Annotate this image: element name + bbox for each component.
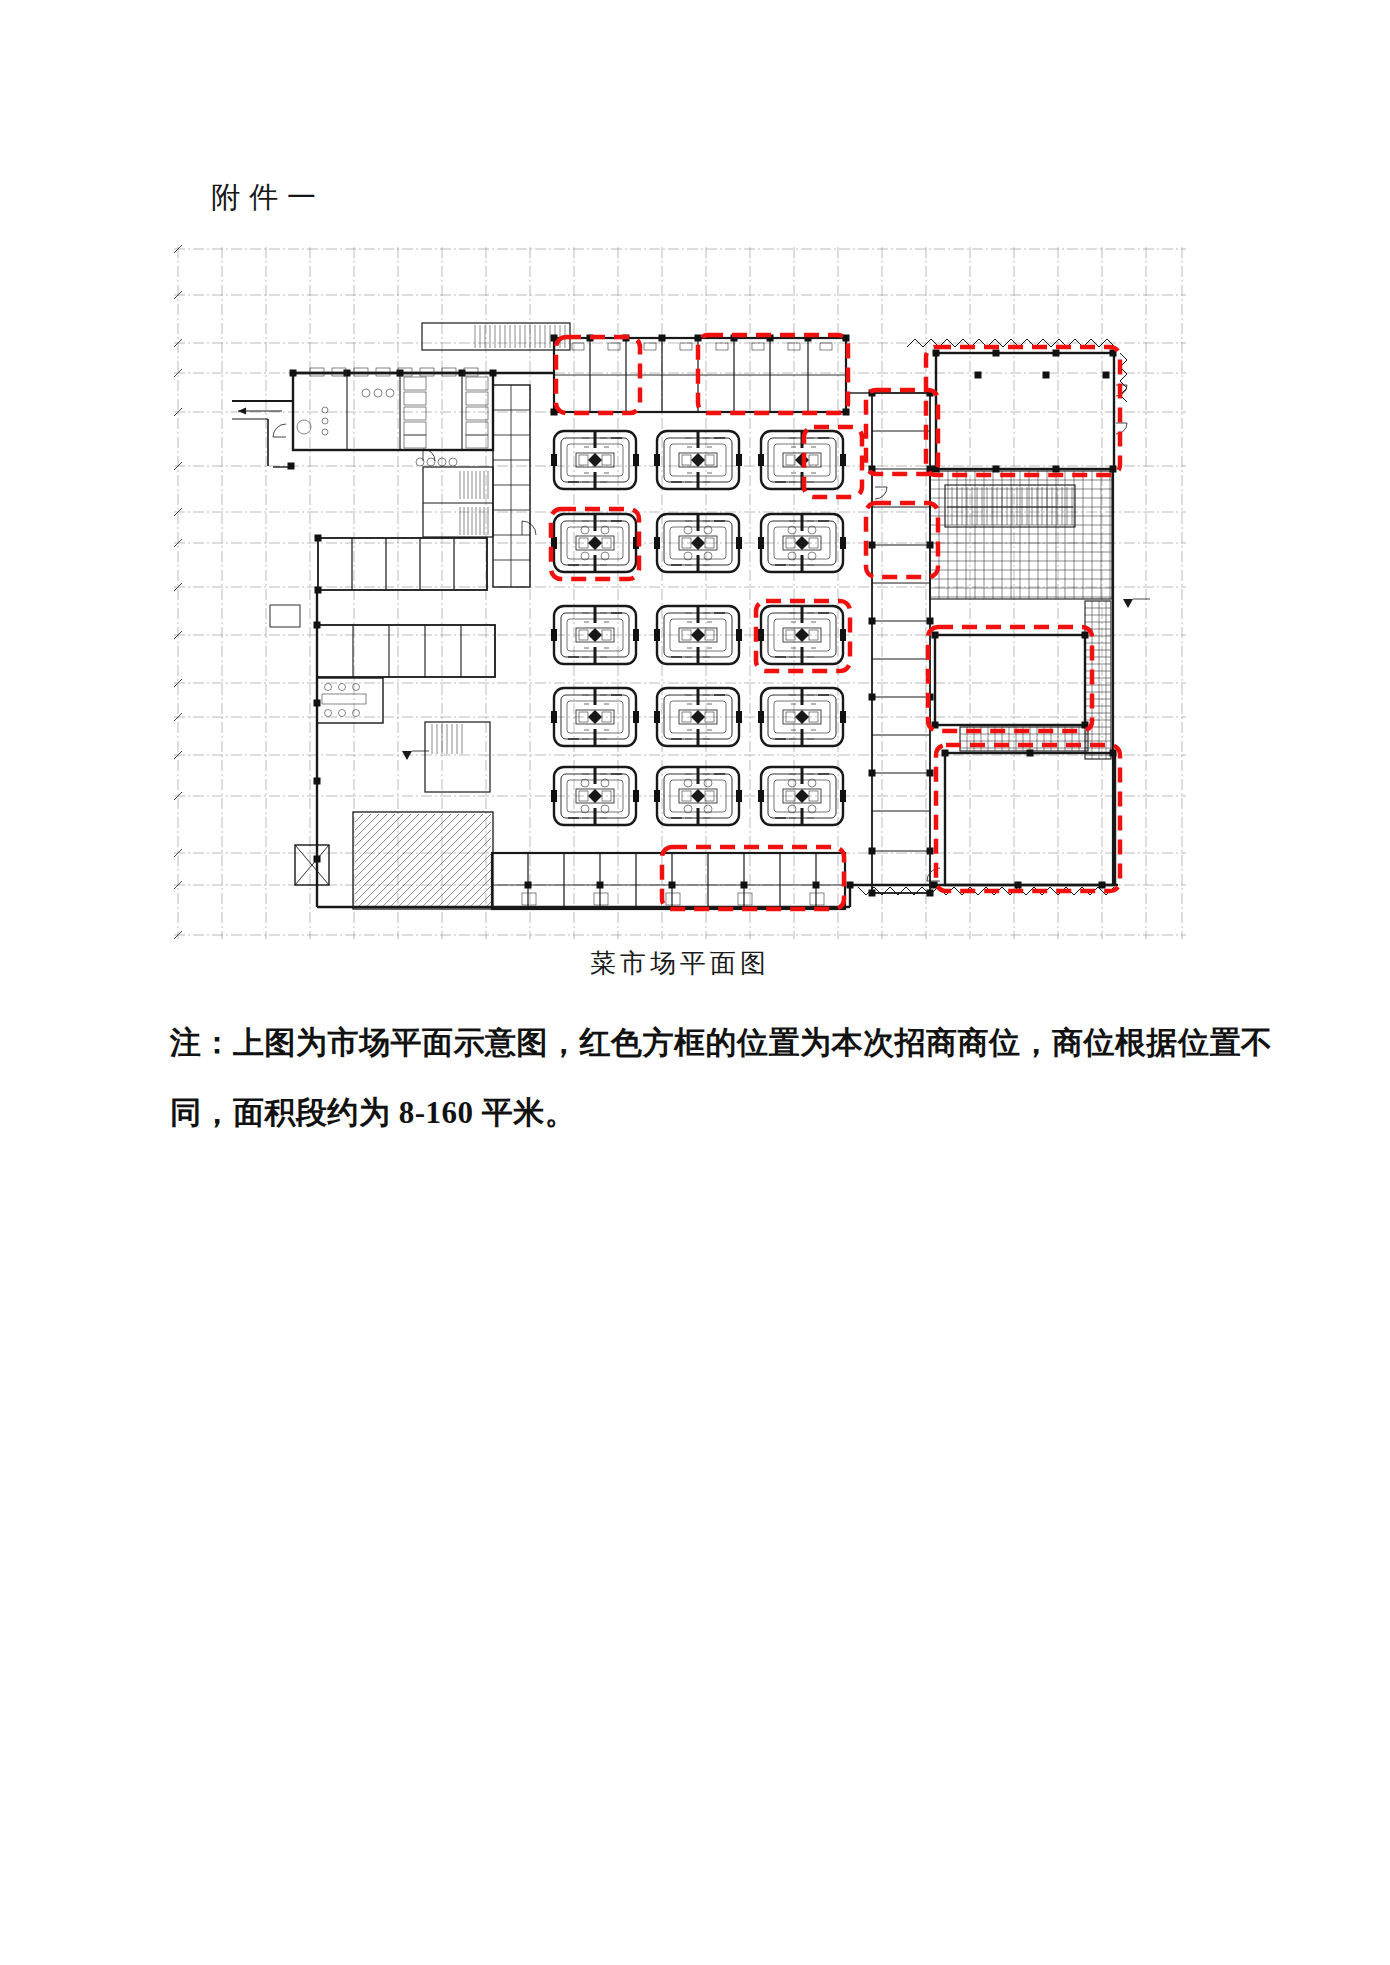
leasing-highlight-box bbox=[866, 503, 938, 577]
figure-caption: 菜市场平面图 bbox=[170, 946, 1190, 981]
document-page: 附件一 菜市场平面图 注：上图为市场平面示意图，红色方框的位置为本次招商商位，商… bbox=[0, 0, 1390, 1965]
leasing-highlight-box bbox=[926, 347, 1120, 475]
attachment-title: 附件一 bbox=[211, 178, 325, 218]
leasing-highlight-box bbox=[928, 627, 1092, 731]
leasing-highlight-box bbox=[662, 847, 844, 909]
leasing-highlight-box bbox=[804, 427, 862, 497]
floorplan-svg bbox=[170, 235, 1190, 950]
note-line-1: 注：上图为市场平面示意图，红色方框的位置为本次招商商位，商位根据位置不 bbox=[170, 1022, 1240, 1064]
note-line-2: 同，面积段约为 8-160 平米。 bbox=[170, 1092, 1240, 1134]
stall-island bbox=[551, 431, 639, 489]
leasing-highlight-box bbox=[936, 745, 1120, 891]
stall-island bbox=[654, 431, 742, 489]
floorplan-figure bbox=[170, 235, 1190, 950]
leasing-highlight-box bbox=[698, 335, 848, 413]
